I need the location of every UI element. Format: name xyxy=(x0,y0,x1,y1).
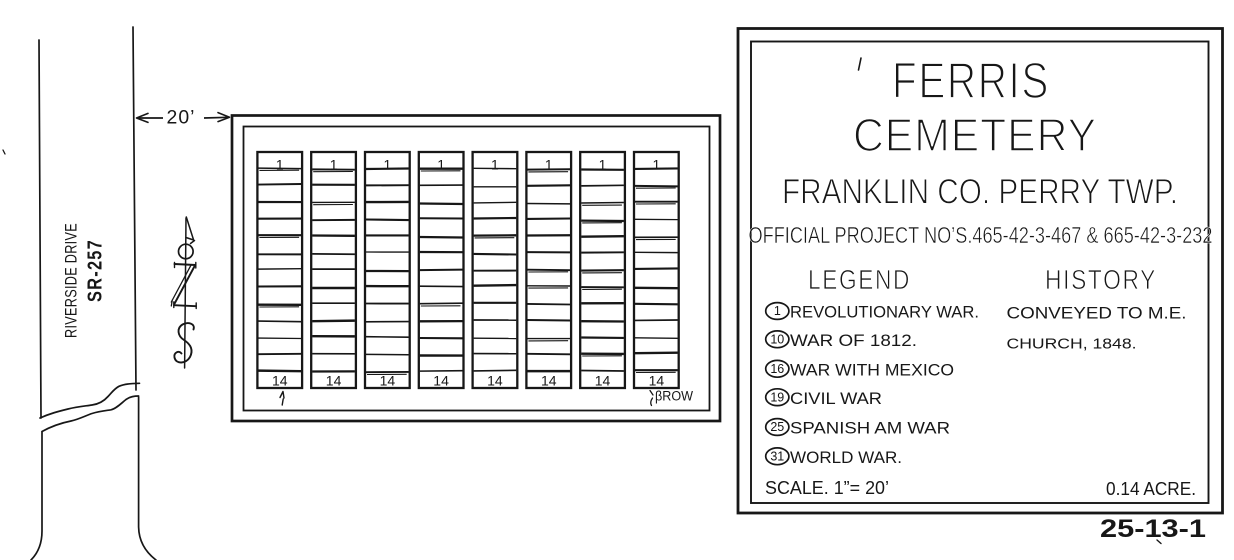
svg-text:OFFICIAL PROJECT NO’S.465-42-3: OFFICIAL PROJECT NO’S.465-42-3-467 & 665… xyxy=(749,222,1213,248)
svg-text:1: 1 xyxy=(491,157,499,173)
svg-text:CHURCH, 1848.: CHURCH, 1848. xyxy=(1007,336,1137,353)
svg-text:14: 14 xyxy=(541,373,557,389)
svg-text:10: 10 xyxy=(770,333,784,347)
svg-text:14: 14 xyxy=(380,373,396,389)
svg-text:25: 25 xyxy=(770,420,784,434)
svg-text:14: 14 xyxy=(487,373,503,389)
svg-text:CONVEYED TO M.E.: CONVEYED TO M.E. xyxy=(1007,304,1187,323)
svg-text:14: 14 xyxy=(595,373,611,389)
svg-text:0.14 ACRE.: 0.14 ACRE. xyxy=(1106,479,1196,499)
svg-text:SPANISH AM WAR: SPANISH AM WAR xyxy=(790,419,950,438)
svg-text:1: 1 xyxy=(599,157,607,173)
svg-text:WAR WITH MEXICO: WAR WITH MEXICO xyxy=(790,360,954,379)
svg-text:βROW: βROW xyxy=(655,389,693,404)
svg-text:1: 1 xyxy=(276,157,284,173)
svg-text:1: 1 xyxy=(330,157,338,173)
svg-text:1: 1 xyxy=(774,304,781,318)
svg-text:LEGEND: LEGEND xyxy=(808,264,911,295)
svg-text:25-13-1: 25-13-1 xyxy=(1100,515,1206,543)
svg-text:16: 16 xyxy=(770,362,784,376)
svg-text:1: 1 xyxy=(545,157,553,173)
svg-text:WAR OF 1812.: WAR OF 1812. xyxy=(790,331,917,350)
svg-text:14: 14 xyxy=(326,373,342,389)
svg-text:1: 1 xyxy=(653,157,661,173)
svg-text:FRANKLIN CO. PERRY TWP.: FRANKLIN CO. PERRY TWP. xyxy=(782,173,1178,212)
svg-text:20’: 20’ xyxy=(167,108,196,129)
svg-text:RIVERSIDE DRIVE: RIVERSIDE DRIVE xyxy=(63,223,81,338)
svg-text:HISTORY: HISTORY xyxy=(1045,264,1157,295)
svg-text:CIVIL WAR: CIVIL WAR xyxy=(790,389,882,408)
svg-text:WORLD WAR.: WORLD WAR. xyxy=(790,448,902,467)
svg-text:SCALE. 1”= 20’: SCALE. 1”= 20’ xyxy=(765,478,889,498)
svg-text:31: 31 xyxy=(770,450,784,464)
svg-text:1: 1 xyxy=(384,157,392,173)
svg-text:14: 14 xyxy=(649,373,665,389)
svg-text:1: 1 xyxy=(437,157,445,173)
svg-text:CEMETERY: CEMETERY xyxy=(853,109,1097,161)
svg-text:SR-257: SR-257 xyxy=(85,239,107,302)
svg-text:14: 14 xyxy=(272,373,288,389)
svg-text:FERRIS: FERRIS xyxy=(892,52,1050,109)
svg-text:19: 19 xyxy=(770,390,784,404)
svg-text:14: 14 xyxy=(433,373,449,389)
svg-text:REVOLUTIONARY WAR.: REVOLUTIONARY WAR. xyxy=(790,303,979,322)
